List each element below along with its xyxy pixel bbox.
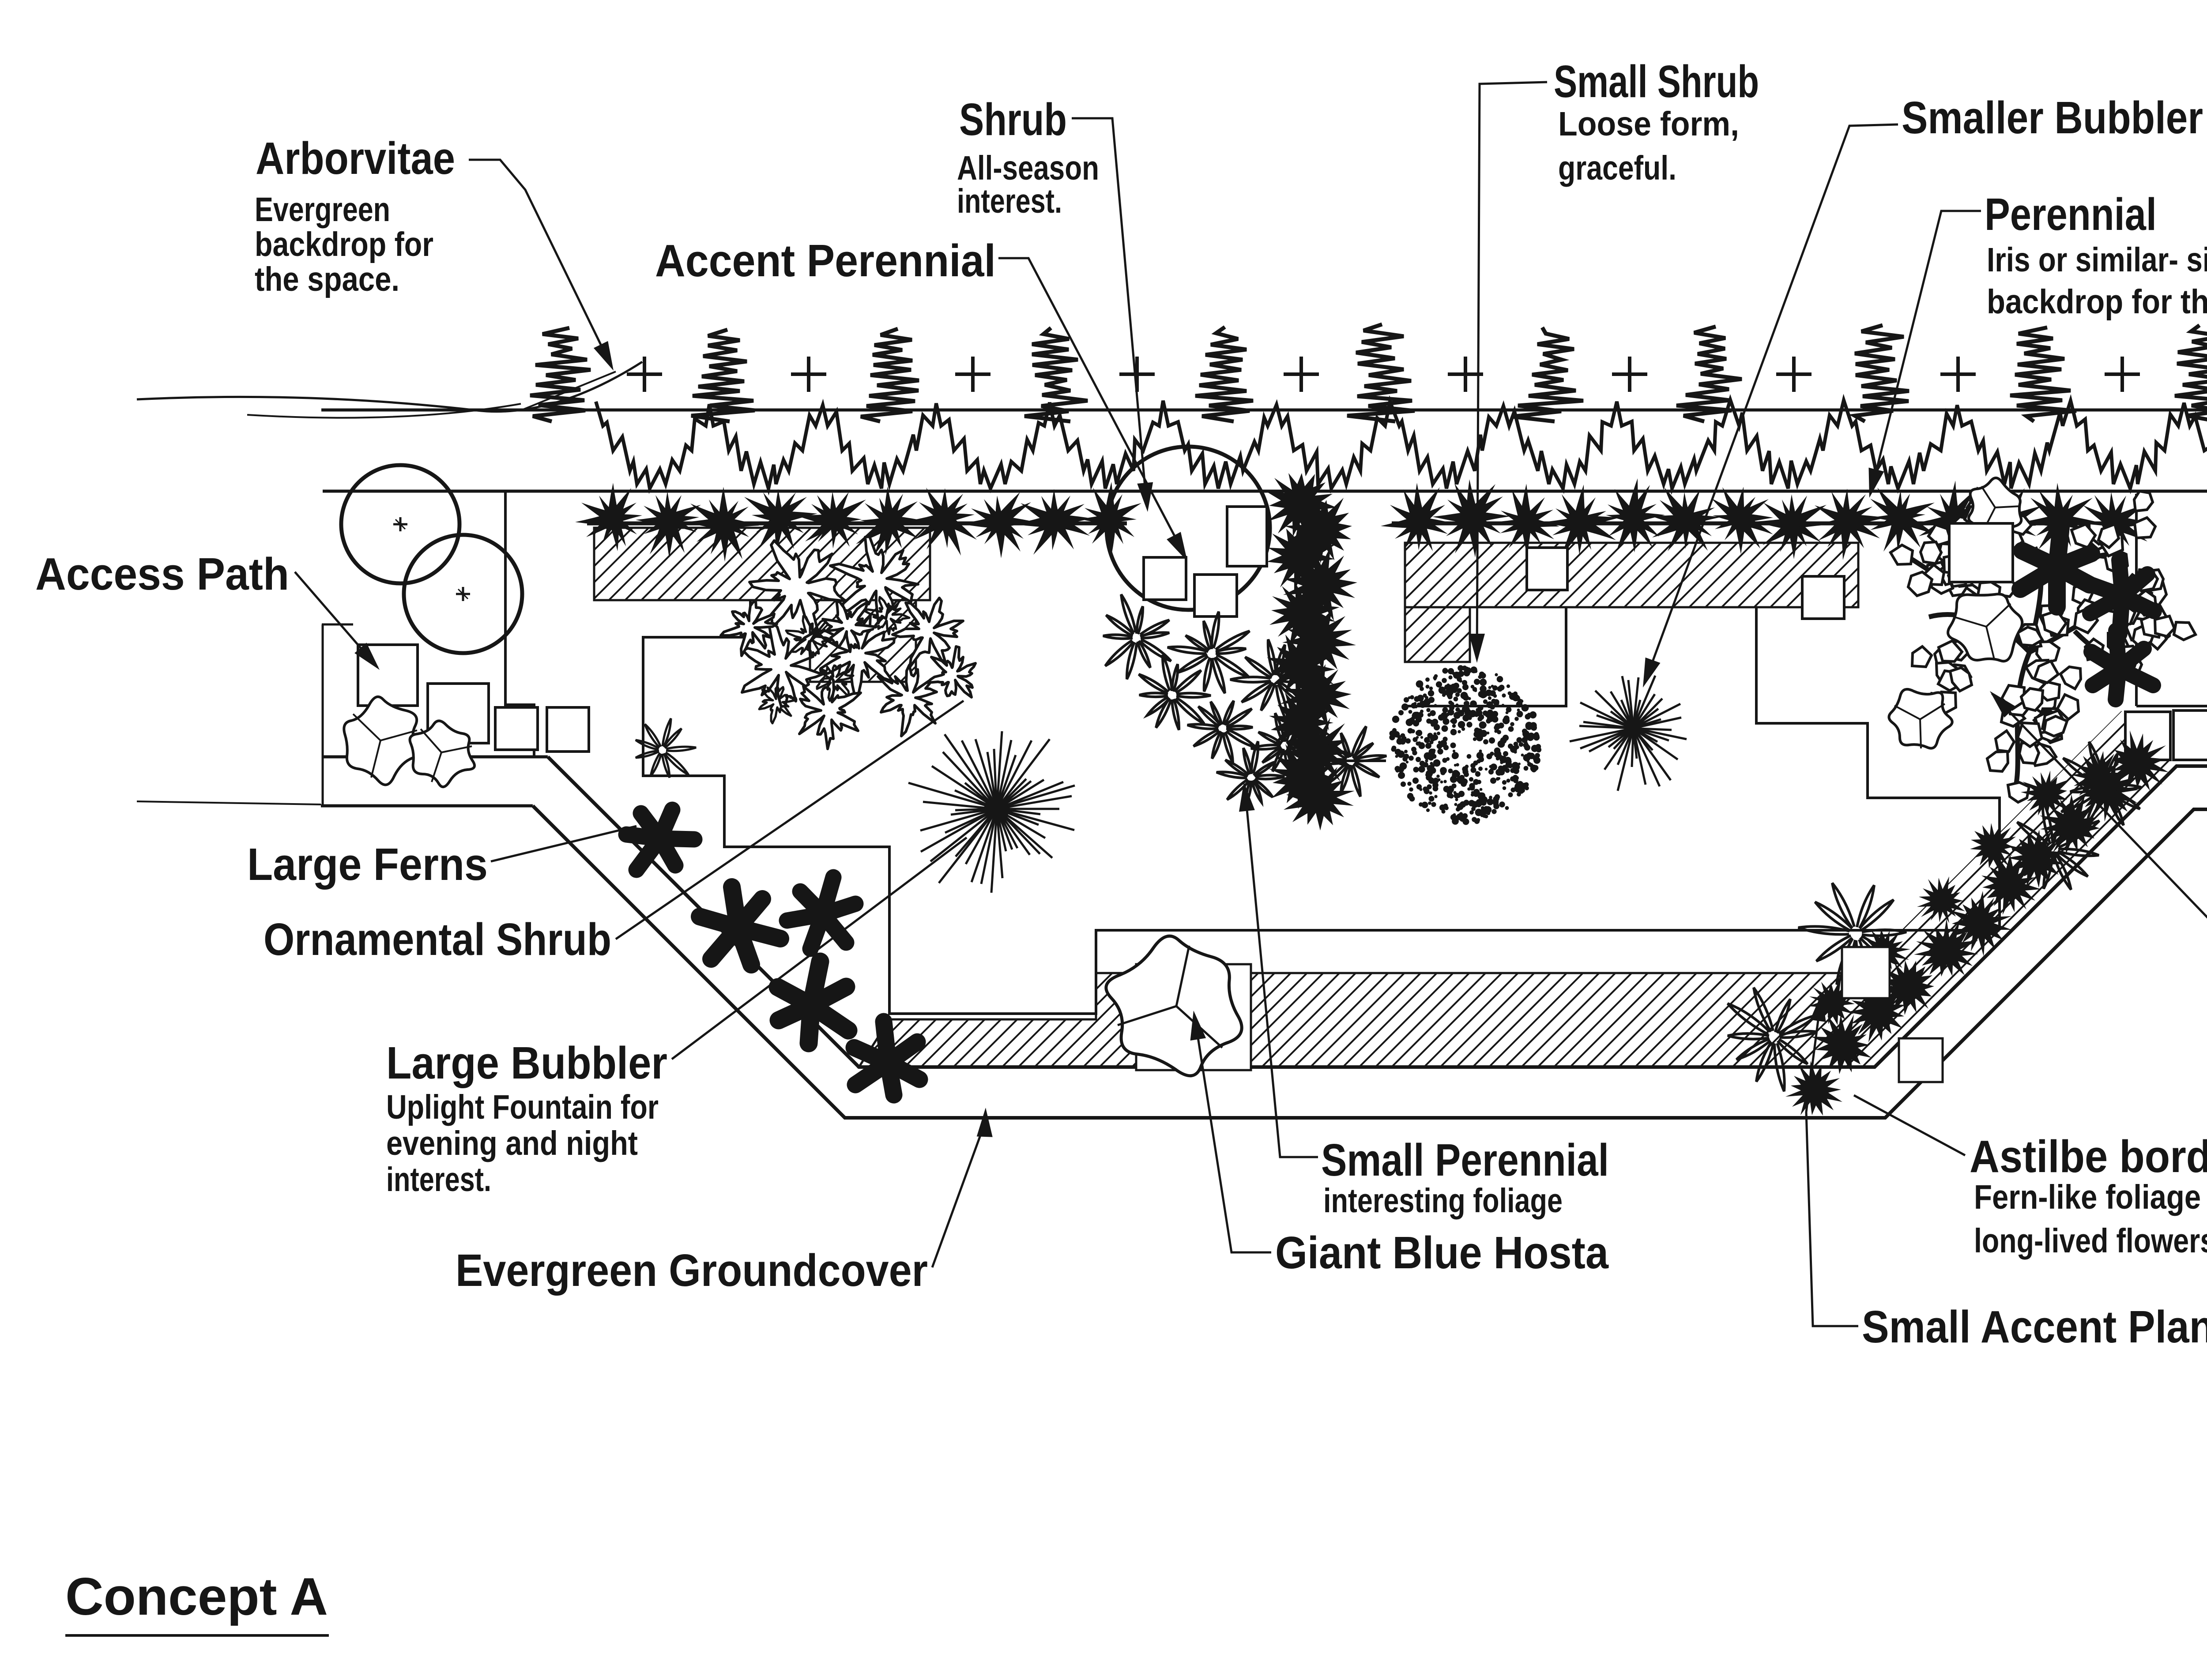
svg-text:backdrop for: backdrop for xyxy=(255,226,433,263)
svg-text:interesting foliage: interesting foliage xyxy=(1323,1182,1563,1220)
svg-text:Accent Perennial: Accent Perennial xyxy=(655,235,996,286)
svg-text:long-lived flowers.: long-lived flowers. xyxy=(1974,1222,2207,1260)
svg-text:the space.: the space. xyxy=(255,260,399,298)
svg-text:Small Perennial: Small Perennial xyxy=(1321,1135,1609,1185)
svg-text:Iris or similar- simple foliag: Iris or similar- simple foliage xyxy=(1987,241,2207,279)
svg-text:backdrop for the space.: backdrop for the space. xyxy=(1987,283,2207,321)
svg-text:interest.: interest. xyxy=(386,1161,491,1199)
svg-text:Arborvitae: Arborvitae xyxy=(256,133,455,184)
svg-text:graceful.: graceful. xyxy=(1558,149,1676,187)
svg-text:Access Path: Access Path xyxy=(35,549,289,599)
svg-text:Evergreen: Evergreen xyxy=(255,191,390,229)
svg-text:Astilbe border: Astilbe border xyxy=(1970,1131,2207,1182)
svg-text:Loose form,: Loose form, xyxy=(1558,105,1739,143)
svg-text:Concept A: Concept A xyxy=(65,1567,328,1626)
svg-text:Large Bubbler: Large Bubbler xyxy=(386,1037,667,1088)
svg-text:Giant Blue Hosta: Giant Blue Hosta xyxy=(1275,1227,1609,1278)
svg-text:Uplight Fountain for: Uplight Fountain for xyxy=(386,1088,659,1126)
svg-text:Small Accent Plant (iris): Small Accent Plant (iris) xyxy=(1862,1301,2207,1352)
svg-text:evening and night: evening and night xyxy=(386,1124,638,1162)
svg-text:All-season: All-season xyxy=(957,149,1099,187)
svg-text:Perennial: Perennial xyxy=(1985,189,2157,240)
svg-text:Evergreen Groundcover: Evergreen Groundcover xyxy=(456,1245,928,1296)
svg-text:Ornamental Shrub: Ornamental Shrub xyxy=(264,914,611,965)
svg-text:Large Ferns: Large Ferns xyxy=(247,839,488,890)
svg-text:Small Shrub: Small Shrub xyxy=(1554,56,1759,107)
svg-text:Shrub: Shrub xyxy=(959,94,1067,145)
svg-text:Smaller Bubbler: Smaller Bubbler xyxy=(1902,92,2203,143)
svg-text:Fern-like foliage and: Fern-like foliage and xyxy=(1974,1178,2207,1216)
svg-text:interest.: interest. xyxy=(957,182,1062,220)
